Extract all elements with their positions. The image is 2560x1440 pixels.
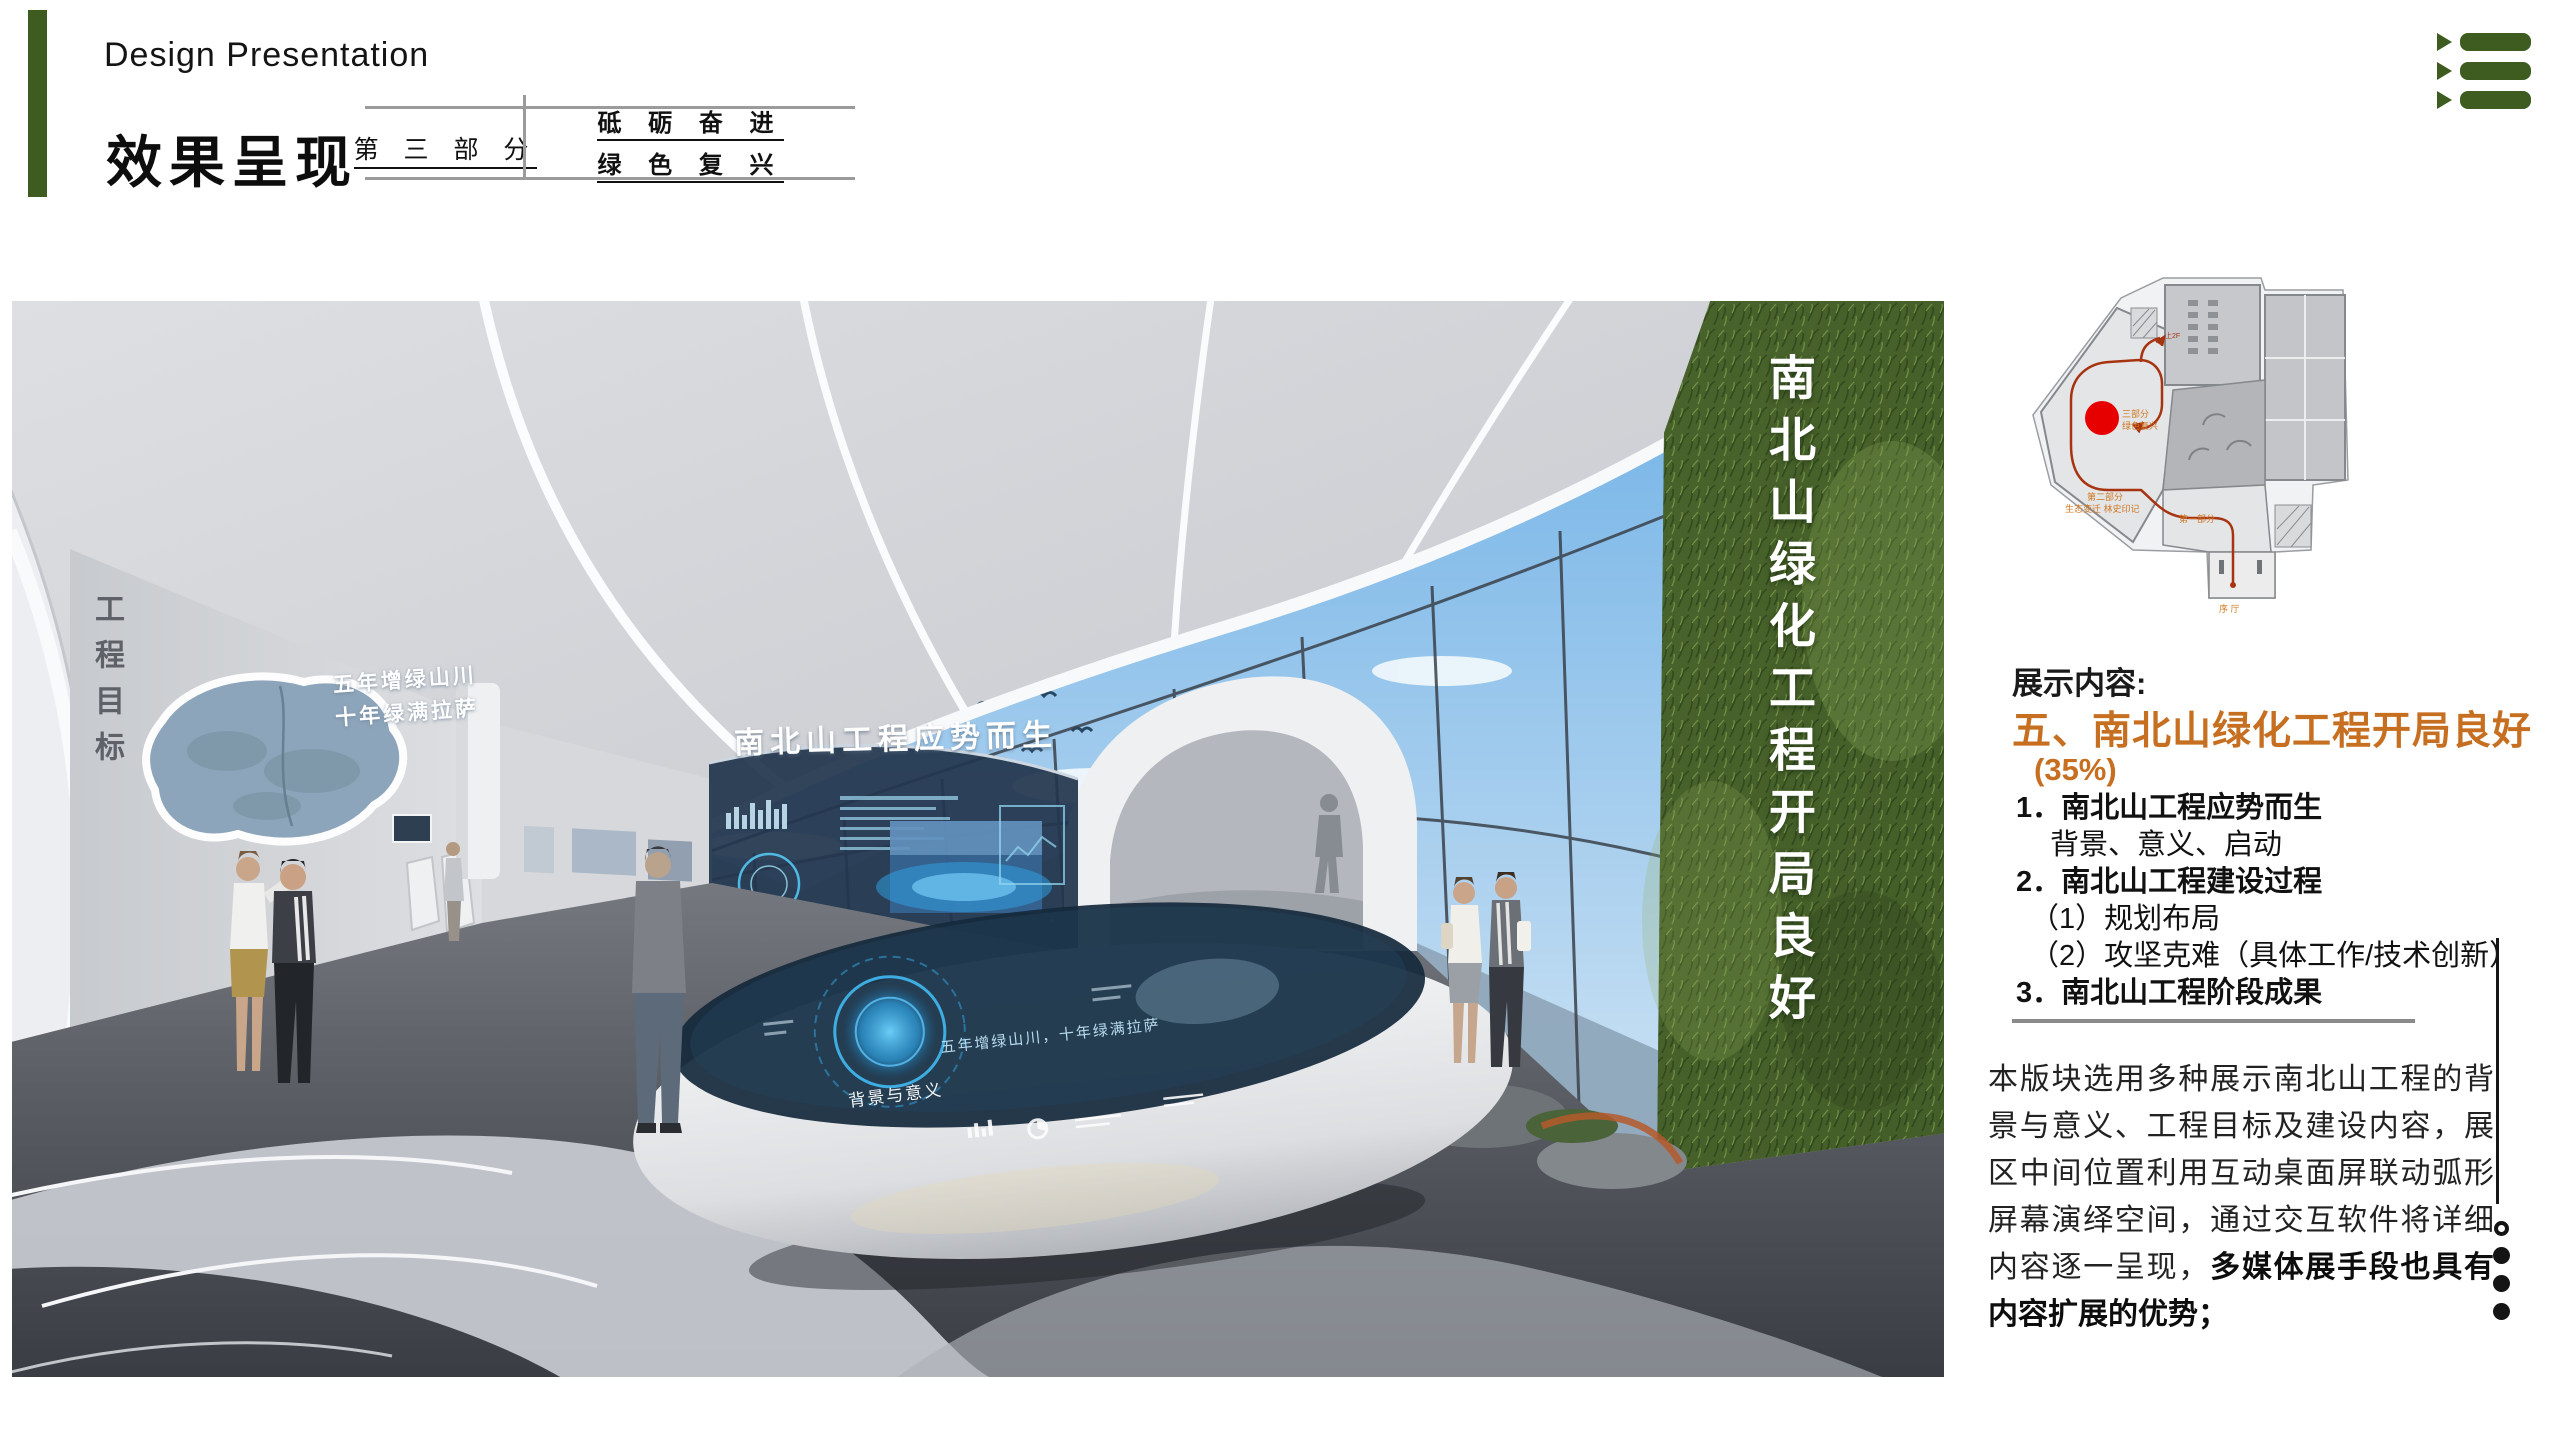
screen-title-text: 南北山工程应势而生: [733, 710, 1058, 762]
outline-item-1a: 背景、意义、启动: [2016, 827, 2536, 863]
page-dot[interactable]: [2493, 1247, 2510, 1264]
outline-item-2b: （2）攻坚克难（具体工作/技术创新）: [2016, 938, 2536, 974]
floor-plan: 三部分 绿色复兴 第二部分 生态变迁 林史印记 第一部分 序 厅 上2F: [2013, 250, 2355, 650]
list-bar: [2460, 62, 2531, 80]
part-slogan-line1: 砥 砺 奋 进: [597, 103, 783, 141]
section-divider: [2012, 1019, 2415, 1023]
content-outline: 1．南北山工程应势而生 背景、意义、启动 2．南北山工程建设过程 （1）规划布局…: [2016, 790, 2536, 1012]
arrow-bullet-icon: [2437, 91, 2452, 109]
wall-goal-text: 工程目标: [84, 593, 128, 777]
slide-title-cn: 效果呈现: [106, 118, 358, 199]
outline-item-1: 1．南北山工程应势而生: [2016, 790, 2536, 826]
arrow-bullet-icon: [2437, 33, 2452, 51]
location-marker: [2085, 401, 2119, 435]
svg-text:绿色复兴: 绿色复兴: [2122, 420, 2158, 431]
outline-item-2a: （1）规划布局: [2016, 901, 2536, 937]
page-dot[interactable]: [2493, 1275, 2510, 1292]
arrow-bullet-icon: [2437, 62, 2452, 80]
svg-text:第二部分: 第二部分: [2087, 491, 2123, 502]
page-dot-active[interactable]: [2494, 1221, 2509, 1236]
menu-list-icon[interactable]: [2437, 33, 2531, 109]
svg-text:第一部分: 第一部分: [2179, 513, 2215, 524]
description-paragraph: 本版块选用多种展示南北山工程的背景与意义、工程目标及建设内容，展区中间位置利用互…: [1988, 1056, 2494, 1338]
part-label-box: 第 三 部 分 砥 砺 奋 进 绿 色 复 兴: [365, 106, 855, 180]
outline-item-2: 2．南北山工程建设过程: [2016, 864, 2536, 900]
accent-bar: [28, 10, 47, 197]
content-percentage: (35%): [2034, 752, 2117, 788]
rendering-graphic: [12, 301, 1944, 1377]
page-dot[interactable]: [2493, 1303, 2510, 1320]
plan-central-hall: [2163, 380, 2265, 490]
part-number-label: 第 三 部 分: [354, 130, 538, 169]
list-bar: [2460, 33, 2531, 51]
presentation-slide: Design Presentation 效果呈现 第 三 部 分 砥 砺 奋 进…: [0, 0, 2560, 1440]
slide-title-en: Design Presentation: [104, 36, 429, 75]
svg-text:三部分: 三部分: [2122, 408, 2149, 419]
page-indicator: [2489, 1221, 2513, 1331]
plan-portico: [2209, 552, 2275, 598]
svg-text:序 厅: 序 厅: [2219, 603, 2240, 614]
vertical-rule: [2496, 938, 2499, 1204]
exhibition-hall-rendering: 工程目标 五年增绿山川 十年绿满拉萨 南北山工程应势而生 南北山绿化工程开局良好…: [12, 301, 1944, 1377]
content-heading: 五、南北山绿化工程开局良好: [2012, 700, 2532, 756]
outline-item-3: 3．南北山工程阶段成果: [2016, 975, 2536, 1011]
part-slogan-line2: 绿 色 复 兴: [597, 145, 783, 183]
svg-text:上2F: 上2F: [2165, 331, 2180, 340]
divider-tick: [523, 95, 526, 109]
list-bar: [2460, 91, 2531, 109]
wall-screen: [393, 815, 431, 842]
section-label: 展示内容:: [2012, 658, 2146, 703]
green-wall-title-text: 南北山绿化工程开局良好: [1754, 353, 1823, 1035]
map-slogan-text: 五年增绿山川 十年绿满拉萨: [332, 660, 480, 735]
svg-text:生态变迁 林史印记: 生态变迁 林史印记: [2065, 503, 2140, 514]
cell-divider: [523, 109, 526, 177]
